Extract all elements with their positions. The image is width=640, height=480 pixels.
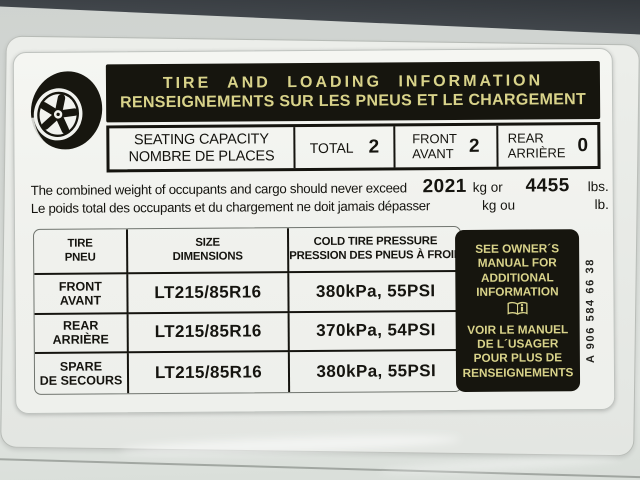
tire-wheel-icon (22, 66, 107, 159)
total-label: TOTAL (310, 139, 354, 155)
label-part-number: A 906 584 66 38 (581, 229, 600, 391)
seating-rear-cell: REAR ARRIÈRE 0 (498, 125, 597, 167)
seating-label-fr: NOMBRE DE PLACES (128, 148, 274, 165)
max-load-text-fr: Le poids total des occupants et du charg… (31, 198, 430, 216)
row-front-label: FRONT AVANT (34, 274, 128, 314)
seating-label-en: SEATING CAPACITY (134, 132, 269, 149)
door-edge-trim (0, 0, 640, 37)
max-load-lbs-value: 4455 (519, 175, 577, 197)
rear-label-en: REAR (508, 131, 566, 146)
row-spare-label: SPARE DE SECOURS (35, 354, 129, 394)
max-load-kg-unit-en: kg or (473, 180, 519, 195)
manual-notice-en: SEE OWNER´S MANUAL FOR ADDITIONAL INFORM… (458, 241, 576, 299)
row-rear-size: LT215/85R16 (129, 313, 290, 354)
rear-value: 0 (577, 135, 588, 157)
seating-total-cell: TOTAL 2 (295, 126, 395, 168)
door-jamb-photo: TIRE AND LOADING INFORMATION RENSEIGNEME… (0, 0, 640, 480)
front-value: 2 (469, 135, 480, 157)
tire-pressure-table: TIRE PNEU SIZE DIMENSIONS COLD TIRE PRES… (33, 226, 462, 395)
total-value: 2 (368, 136, 379, 158)
seating-front-cell: FRONT AVANT 2 (395, 126, 498, 168)
max-load-kg-value: 2021 (417, 176, 473, 198)
row-spare-pressure: 380kPa, 55PSI (290, 351, 462, 392)
row-front-pressure: 380kPa, 55PSI (289, 272, 462, 313)
max-load-lbs-unit-en: lbs. (577, 179, 609, 194)
row-rear-label: REAR ARRIÈRE (35, 314, 129, 354)
rear-label-fr: ARRIÈRE (508, 146, 566, 161)
tire-and-loading-label: TIRE AND LOADING INFORMATION RENSEIGNEME… (13, 48, 616, 414)
manual-notice-fr: VOIR LE MANUEL DE L´USAGER POUR PLUS DE … (459, 322, 577, 380)
row-rear-pressure: 370kPa, 54PSI (290, 312, 463, 353)
label-title-band: TIRE AND LOADING INFORMATION RENSEIGNEME… (106, 61, 600, 122)
max-load-lbs-unit-fr: lb. (579, 197, 609, 212)
row-front-size: LT215/85R16 (128, 273, 289, 314)
col-header-size: SIZE DIMENSIONS (128, 228, 289, 274)
seating-capacity-row: SEATING CAPACITY NOMBRE DE PLACES TOTAL … (106, 122, 600, 172)
owners-manual-notice: SEE OWNER´S MANUAL FOR ADDITIONAL INFORM… (455, 229, 580, 392)
max-load-text-en: The combined weight of occupants and car… (31, 180, 417, 198)
seating-capacity-label-cell: SEATING CAPACITY NOMBRE DE PLACES (109, 127, 295, 169)
front-label-fr: AVANT (412, 146, 457, 161)
col-header-pressure: COLD TIRE PRESSURE PRESSION DES PNEUS À … (289, 227, 462, 273)
max-load-kg-unit-fr: kg ou (482, 198, 525, 213)
title-english: TIRE AND LOADING INFORMATION (163, 72, 543, 93)
row-spare-size: LT215/85R16 (129, 352, 290, 393)
title-french: RENSEIGNEMENTS SUR LES PNEUS ET LE CHARG… (120, 91, 586, 112)
open-book-info-icon (505, 301, 529, 321)
col-header-tire: TIRE PNEU (34, 229, 128, 275)
front-label-en: FRONT (412, 132, 457, 147)
max-load-statement: The combined weight of occupants and car… (31, 175, 609, 223)
